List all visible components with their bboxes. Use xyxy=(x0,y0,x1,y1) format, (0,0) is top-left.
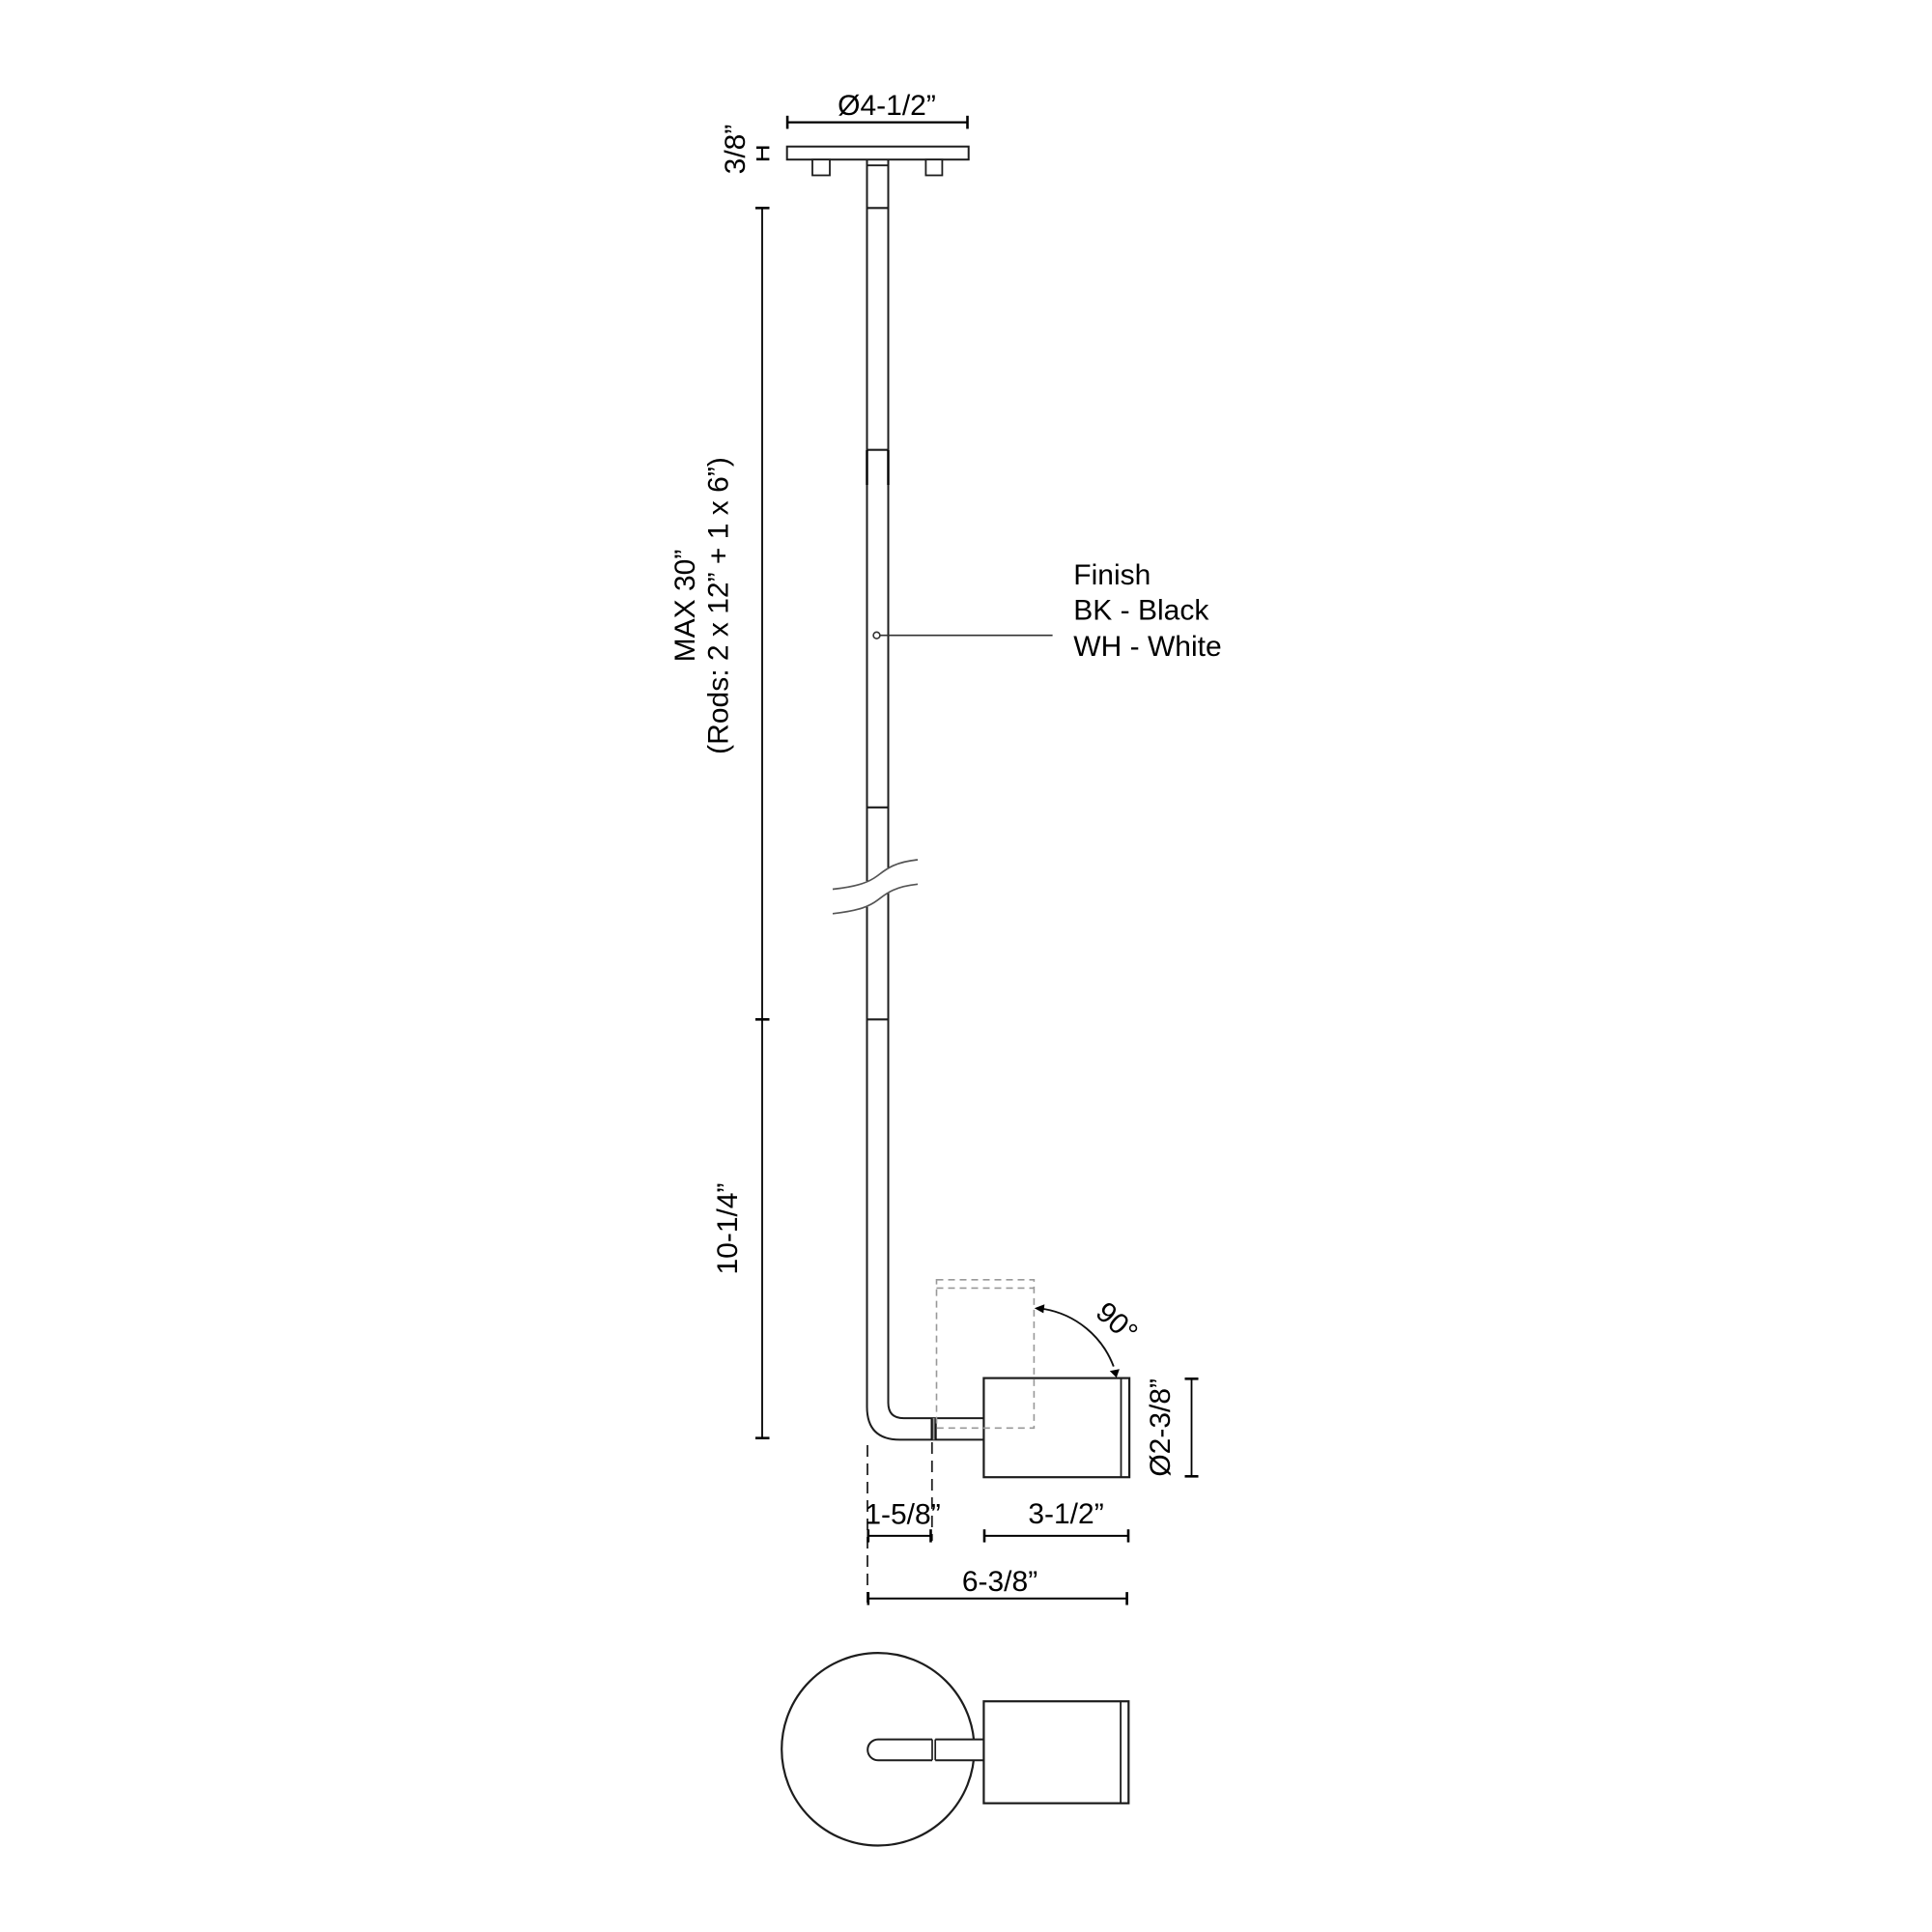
svg-text:BK - Black: BK - Black xyxy=(1073,595,1209,627)
svg-text:Ø4-1/2”: Ø4-1/2” xyxy=(838,90,936,122)
svg-text:3-1/2”: 3-1/2” xyxy=(1028,1498,1103,1530)
svg-text:MAX 30”: MAX 30” xyxy=(669,550,701,663)
svg-text:10-1/4”: 10-1/4” xyxy=(712,1182,744,1274)
svg-text:3/8”: 3/8” xyxy=(720,125,752,175)
svg-text:Ø2-3/8”: Ø2-3/8” xyxy=(1145,1378,1177,1477)
svg-text:1-5/8”: 1-5/8” xyxy=(865,1499,940,1531)
svg-text:6-3/8”: 6-3/8” xyxy=(962,1566,1037,1598)
svg-text:(Rods: 2 x 12” + 1 x 6”): (Rods: 2 x 12” + 1 x 6”) xyxy=(703,457,735,754)
svg-text:WH - White: WH - White xyxy=(1073,631,1221,663)
svg-text:Finish: Finish xyxy=(1073,559,1151,591)
